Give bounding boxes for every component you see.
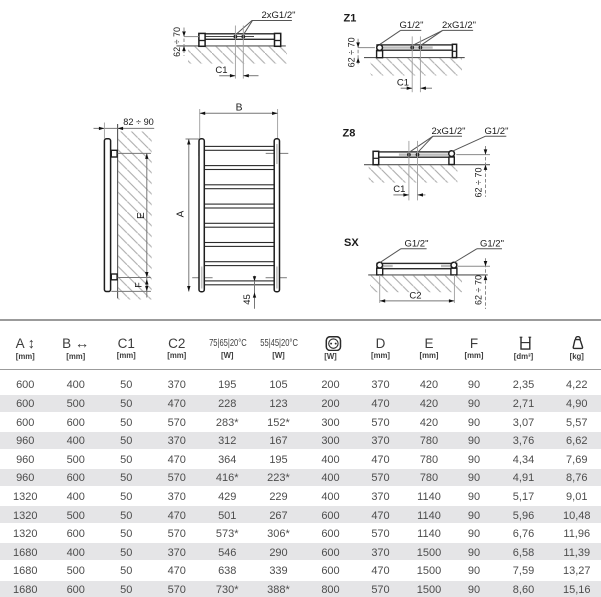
svg-text:Z8: Z8 [343,128,356,140]
svg-text:2xG1/2": 2xG1/2" [262,10,296,21]
svg-text:A: A [176,210,187,217]
svg-text:G1/2": G1/2" [400,20,424,31]
svg-text:62 ÷ 70: 62 ÷ 70 [172,27,182,57]
svg-text:G1/2": G1/2" [405,239,429,250]
svg-text:C2: C2 [409,291,421,302]
svg-text:45: 45 [242,294,253,305]
svg-text:82 ÷ 90: 82 ÷ 90 [123,117,154,127]
svg-text:G1/2": G1/2" [480,239,504,250]
svg-text:E: E [136,212,147,219]
svg-text:C1: C1 [393,184,405,195]
svg-text:C1: C1 [215,65,227,76]
svg-text:62 ÷ 70: 62 ÷ 70 [347,37,357,67]
svg-text:2xG1/2": 2xG1/2" [432,126,466,137]
svg-text:SX: SX [344,237,359,249]
svg-text:B: B [236,102,243,113]
svg-text:G1/2": G1/2" [485,126,509,137]
svg-text:62 ÷ 70: 62 ÷ 70 [474,275,484,305]
svg-text:2xG1/2": 2xG1/2" [442,20,476,31]
svg-text:F: F [134,282,144,288]
svg-text:Z1: Z1 [344,13,357,25]
svg-text:62 ÷ 70: 62 ÷ 70 [474,168,484,198]
svg-text:C1: C1 [397,77,409,88]
